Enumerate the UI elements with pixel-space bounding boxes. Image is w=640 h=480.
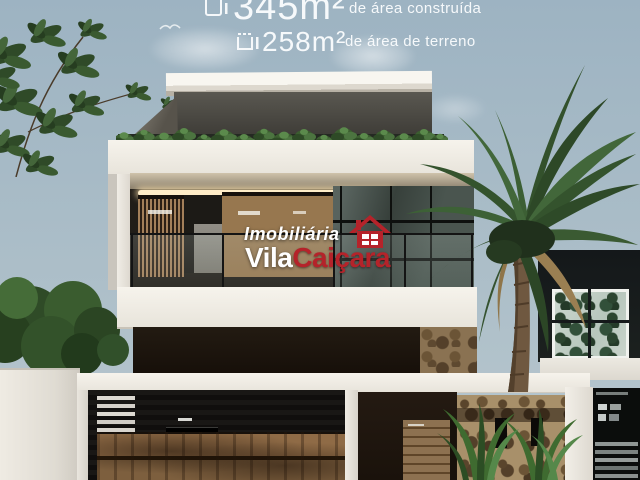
watermark-caicara: Caiçara bbox=[292, 242, 390, 273]
watermark-brand-main: VilaCaiçara bbox=[245, 242, 390, 274]
boundary-wall bbox=[0, 368, 80, 480]
vent bbox=[293, 211, 306, 214]
parapet-side bbox=[108, 174, 117, 290]
pillar bbox=[345, 390, 358, 480]
watermark-vila: Vila bbox=[245, 242, 292, 273]
railing-post bbox=[131, 235, 133, 292]
entry-door-handle bbox=[408, 424, 424, 426]
garage-handle bbox=[178, 418, 192, 421]
garage-door bbox=[88, 390, 345, 480]
vent bbox=[238, 211, 260, 215]
balcony-column bbox=[117, 174, 130, 290]
garage-wood-panel bbox=[97, 432, 345, 480]
vent bbox=[148, 210, 172, 214]
property-photo: Imobiliária VilaCaiçara 345m² de área co… bbox=[0, 0, 640, 480]
built-area-label: de área construída bbox=[349, 0, 481, 17]
garage-vent-slats bbox=[97, 396, 135, 436]
pillar bbox=[77, 390, 88, 480]
entrance-plants bbox=[435, 395, 590, 480]
built-area-icon bbox=[205, 0, 231, 19]
land-area-value: 258m² bbox=[262, 26, 346, 58]
built-area-value: 345m² bbox=[233, 0, 346, 29]
land-area-label: de área de terreno bbox=[345, 33, 476, 50]
railing-post bbox=[222, 235, 224, 292]
land-area-icon bbox=[236, 31, 262, 51]
palm-tree bbox=[400, 40, 640, 400]
neighbor-gate bbox=[592, 388, 640, 480]
